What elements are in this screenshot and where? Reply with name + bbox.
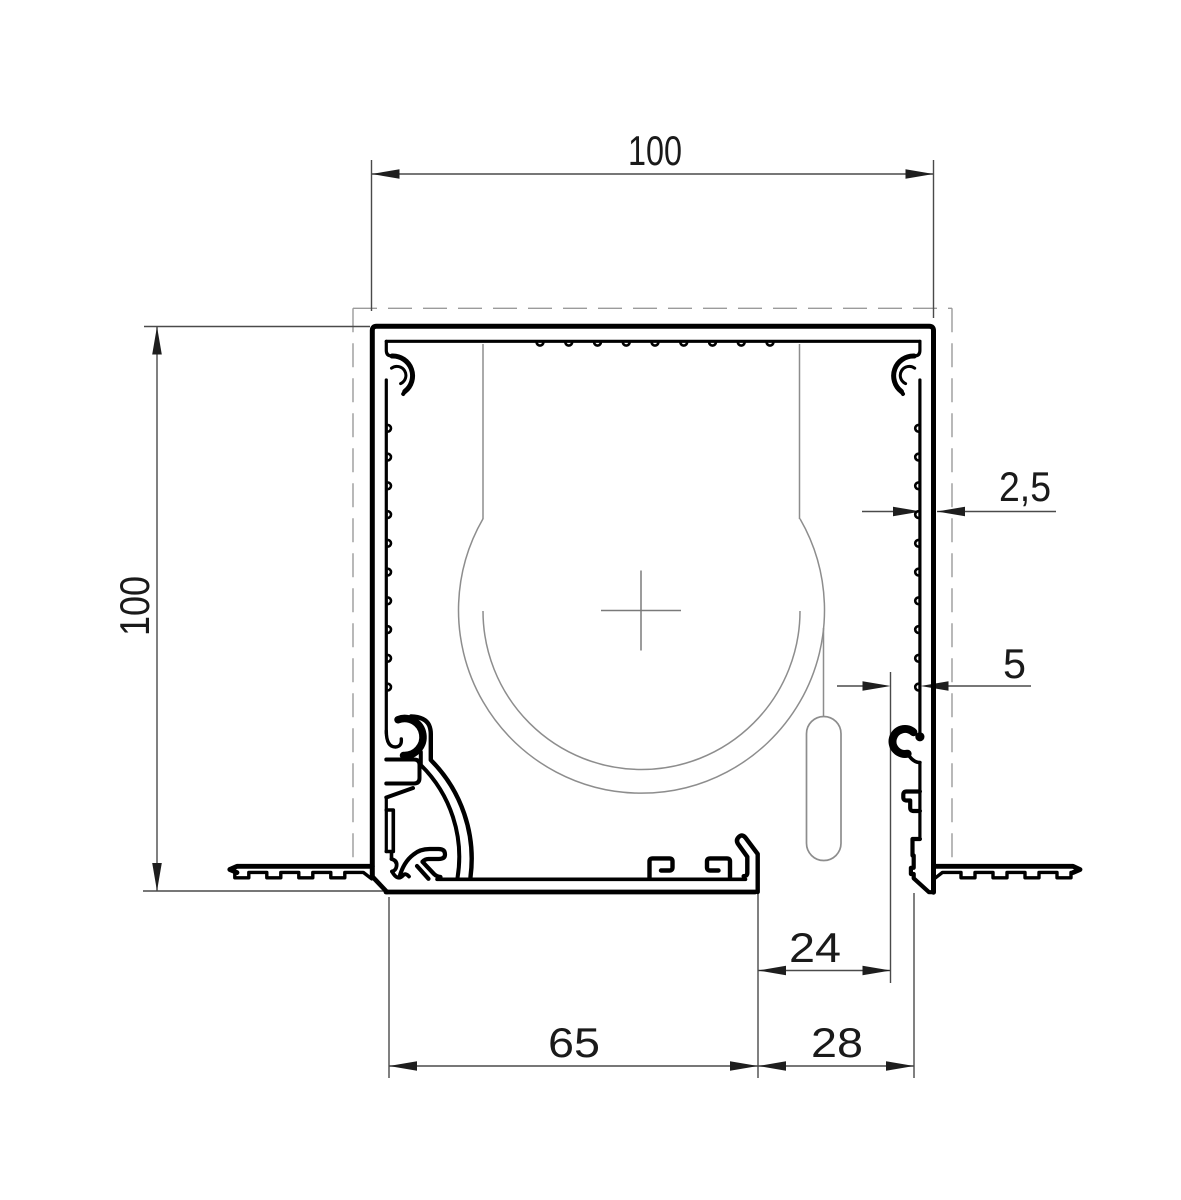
svg-text:100: 100	[628, 127, 682, 174]
svg-text:2,5: 2,5	[999, 463, 1051, 510]
svg-text:24: 24	[789, 924, 841, 971]
svg-text:100: 100	[111, 576, 158, 636]
svg-text:28: 28	[811, 1019, 863, 1066]
svg-text:65: 65	[548, 1019, 600, 1066]
svg-text:5: 5	[1003, 640, 1026, 687]
